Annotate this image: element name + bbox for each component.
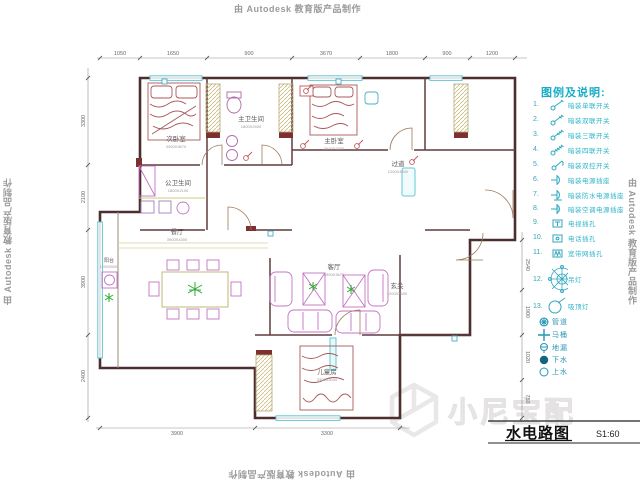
plants (105, 282, 355, 302)
tv-outlet-icon (546, 217, 568, 229)
svg-text:公卫生间: 公卫生间 (165, 178, 191, 187)
room-label-common-bathroom: 公卫生间1800X2100 (165, 178, 191, 193)
svg-text:2400: 2400 (81, 370, 87, 382)
svg-text:1650: 1650 (167, 51, 179, 57)
svg-text:1800X2400: 1800X2400 (241, 124, 262, 129)
legend-pipe-item: 管道 (536, 316, 568, 328)
room-label-living-room: 客厅3900X3670 (324, 262, 345, 277)
triple-gang-switch-icon (546, 129, 568, 141)
svg-text:3300: 3300 (321, 431, 333, 437)
room-label-kids-room: 儿童房3300X3000 (317, 367, 338, 382)
svg-text:1800X2100: 1800X2100 (168, 188, 189, 193)
waste-water-icon (536, 354, 552, 366)
quad-gang-switch-icon (546, 144, 568, 156)
waterproof-socket-icon (546, 189, 568, 201)
svg-text:客厅: 客厅 (328, 262, 342, 271)
svg-text:1200X5000: 1200X5000 (100, 265, 118, 269)
svg-text:3300: 3300 (81, 115, 87, 127)
living-room-furniture (270, 270, 388, 333)
legend-item: 13. 吸顶灯 (533, 296, 589, 316)
svg-text:3900: 3900 (171, 431, 183, 437)
legend-pipe-item: 地漏 (536, 342, 568, 354)
ceiling-lamp-icon (546, 296, 568, 316)
legend-item: 5. 暗装双控开关 (533, 158, 610, 171)
svg-text:3300X3000: 3300X3000 (317, 377, 338, 382)
phone-outlet-icon (546, 232, 568, 244)
svg-text:主卧室: 主卧室 (324, 136, 344, 145)
legend-pipe-item: 马桶 (536, 329, 568, 341)
room-label-entry: 玄关1200X2400 (387, 281, 408, 296)
legend-pipe-item: 下水 (536, 354, 568, 366)
svg-text:900: 900 (244, 51, 253, 57)
legend-item: 3. 暗装三联开关 (533, 128, 610, 141)
room-label-master-bathroom: 主卫生间1800X2400 (238, 114, 264, 129)
svg-text:1050: 1050 (114, 51, 126, 57)
legend-panel: 图例及说明: 1. 暗装单联开关 2. 暗装双联开关 3. 暗装三联开关 4. … (533, 84, 639, 384)
drawing-title: 水电路图 (506, 424, 570, 442)
toilet-icon (536, 328, 552, 342)
bed-secondary-bedroom (148, 83, 200, 140)
room-label-hallway: 过道1200X4800 (388, 159, 409, 174)
door-swings (202, 128, 513, 335)
room-label-secondary-bedroom: 次卧室3300X3670 (166, 134, 187, 149)
legend-item: 10. 电话插孔 (533, 231, 596, 244)
svg-text:3900X3670: 3900X3670 (324, 272, 345, 277)
svg-text:阳台: 阳台 (104, 257, 114, 264)
svg-text:2540: 2540 (524, 259, 530, 271)
ac-socket-icon (546, 203, 568, 215)
balcony-items (102, 272, 117, 288)
svg-text:过道: 过道 (392, 159, 406, 168)
legend-pipe-item: 上水 (536, 366, 568, 378)
svg-text:餐厅: 餐厅 (171, 227, 185, 236)
svg-text:1200: 1200 (486, 51, 498, 57)
svg-text:3300X3670: 3300X3670 (166, 144, 187, 149)
two-way-switch-icon (546, 159, 568, 171)
svg-text:1800: 1800 (386, 51, 398, 57)
svg-text:儿童房: 儿童房 (317, 367, 337, 376)
legend-item: 6. 暗装电源插座 (533, 173, 610, 186)
legend-item: 8. 暗装空调电源插座 (533, 202, 624, 215)
wardrobes (206, 84, 468, 411)
double-gang-switch-icon (546, 114, 568, 126)
svg-text:1200X2400: 1200X2400 (387, 291, 408, 296)
svg-text:次卧室: 次卧室 (166, 134, 186, 143)
bed-master-bedroom (310, 85, 357, 135)
svg-text:1200X4800: 1200X4800 (388, 169, 409, 174)
svg-text:玄关: 玄关 (391, 281, 405, 290)
svg-text:1020: 1020 (524, 351, 530, 363)
legend-item: 9. 电视插孔 (533, 216, 596, 229)
chandelier-icon (546, 263, 568, 295)
svg-text:3670: 3670 (320, 51, 332, 57)
legend-item: 11. 宽带网插孔 (533, 246, 603, 259)
legend-item: 2. 暗装双联开关 (533, 113, 610, 126)
svg-text:3900: 3900 (81, 276, 87, 288)
svg-text:3900X4300: 3900X4300 (167, 237, 188, 242)
svg-text:3670X3300: 3670X3300 (324, 146, 345, 151)
cad-sheet: { "watermarks": { "autodesk": "由 Autodes… (0, 0, 640, 485)
legend-item: 12. 吊灯 (533, 262, 582, 296)
title-block: 水电路图 S1:60 (488, 421, 640, 443)
room-label-master-bedroom: 主卧室3670X3300 (324, 136, 345, 151)
svg-text:2100: 2100 (81, 191, 87, 203)
master-bathroom-fixtures (227, 92, 242, 161)
svg-text:900: 900 (442, 51, 451, 57)
power-socket-icon (546, 174, 568, 186)
svg-text:750: 750 (524, 394, 530, 403)
legend-item: 7. 暗装防水电源插座 (533, 188, 624, 201)
single-gang-switch-icon (546, 99, 568, 111)
supply-water-icon (536, 366, 552, 378)
legend-item: 1. 暗装单联开关 (533, 98, 610, 111)
svg-text:主卫生间: 主卫生间 (238, 114, 264, 123)
svg-text:1900: 1900 (524, 306, 530, 318)
pipe-icon (536, 316, 552, 328)
floor-drain-icon (536, 342, 552, 354)
network-outlet-icon (546, 247, 568, 259)
legend-item: 4. 暗装四联开关 (533, 143, 610, 156)
drawing-scale: S1:60 (596, 429, 620, 439)
